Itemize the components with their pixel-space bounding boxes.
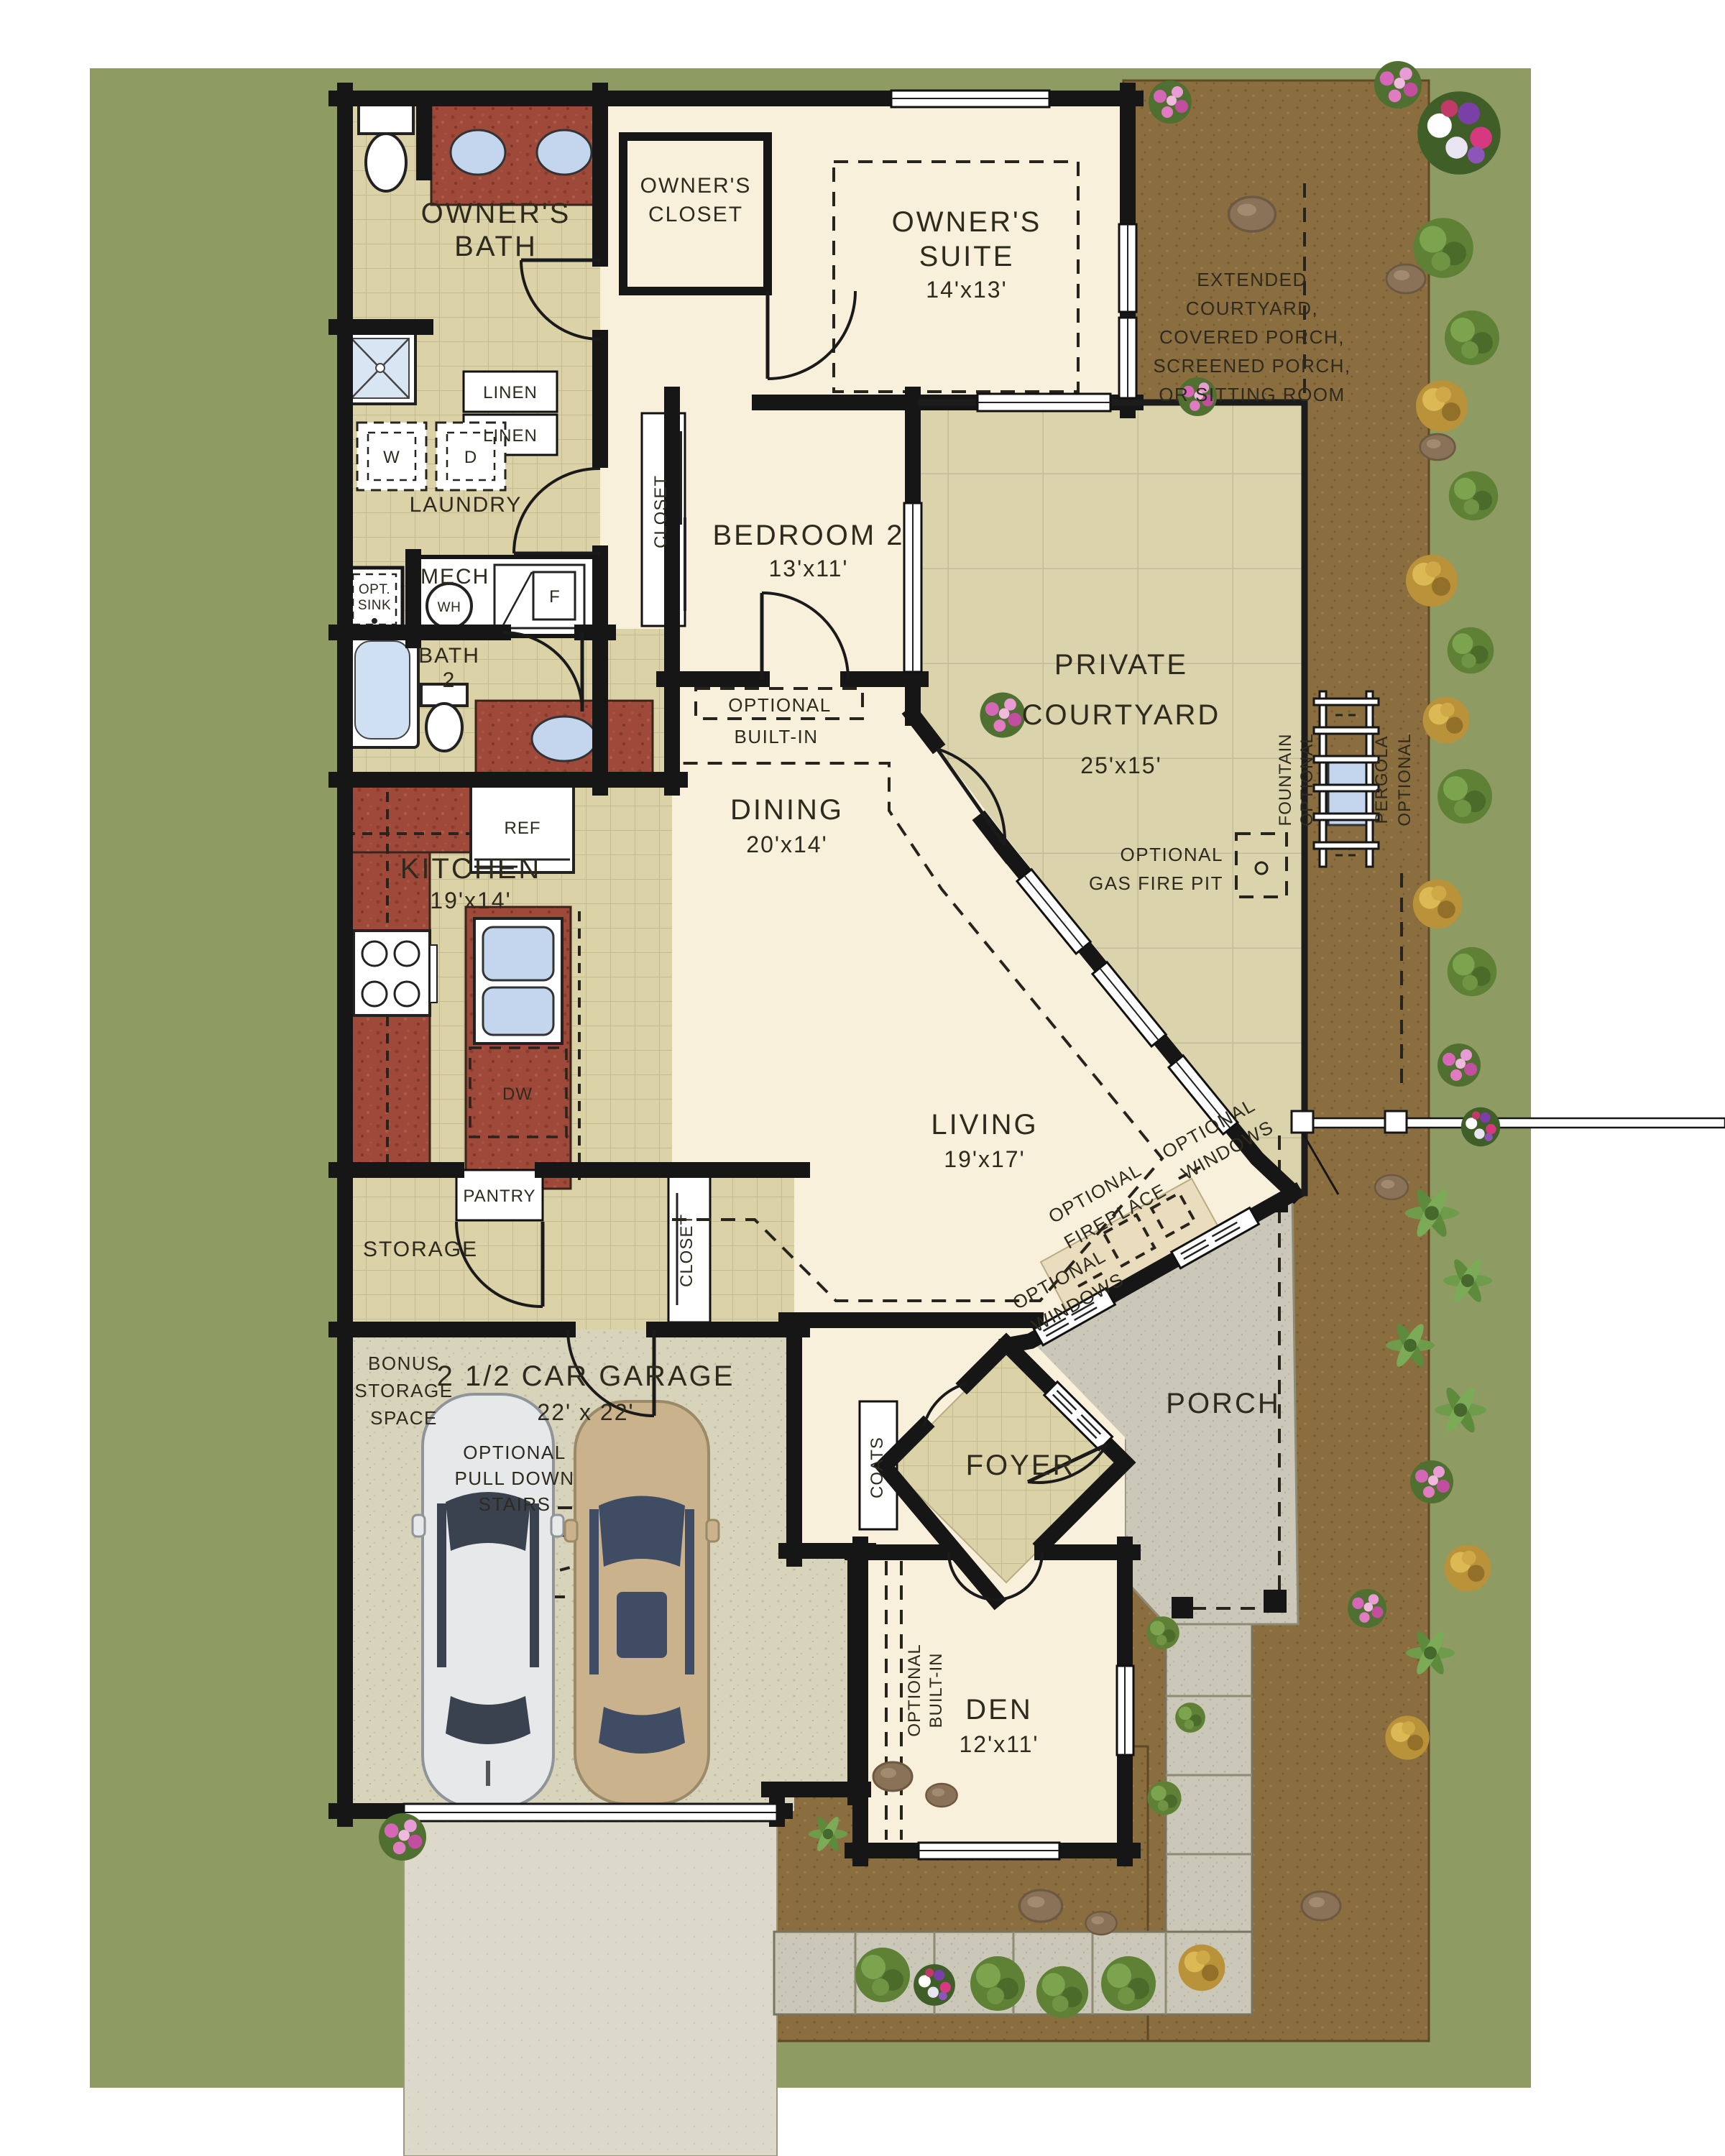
svg-text:SUITE: SUITE (919, 241, 1015, 272)
svg-text:GAS FIRE PIT: GAS FIRE PIT (1089, 872, 1223, 894)
mech-label: MECH (420, 565, 489, 589)
opt-sink-label: OPT. (359, 582, 390, 597)
svg-text:OR SITTING ROOM: OR SITTING ROOM (1159, 384, 1345, 405)
extended-courtyard-label: EXTENDED (1197, 269, 1307, 290)
svg-text:CLOSET: CLOSET (648, 203, 743, 226)
optional-pergola-label: OPTIONAL (1395, 733, 1414, 826)
toilet-icon (359, 105, 413, 134)
svg-text:20'x14': 20'x14' (746, 831, 827, 857)
hall-closet-label: CLOSET (677, 1214, 696, 1287)
svg-text:12'x11': 12'x11' (959, 1731, 1039, 1757)
coats-label: COATS (868, 1437, 887, 1498)
living-label: LIVING (931, 1109, 1038, 1141)
owners-bath-label: OWNER'S (421, 198, 571, 229)
optional-built-in-den-label: OPTIONAL (905, 1644, 924, 1736)
fire-pit-label: OPTIONAL (1121, 844, 1223, 865)
sink-icon (537, 130, 592, 175)
svg-text:SPACE: SPACE (370, 1407, 438, 1429)
washer-label: W (383, 448, 400, 467)
svg-text:COVERED PORCH,: COVERED PORCH, (1159, 326, 1345, 348)
owners-closet-label: OWNER'S (640, 174, 752, 198)
den-label: DEN (965, 1694, 1032, 1726)
car-tan (565, 1401, 719, 1804)
svg-text:BATH: BATH (454, 231, 538, 262)
svg-text:PERGOLA: PERGOLA (1372, 735, 1391, 824)
svg-text:COURTYARD: COURTYARD (1022, 699, 1221, 731)
dining-label: DINING (730, 794, 844, 826)
garage-label: 2 1/2 CAR GARAGE (437, 1360, 735, 1392)
svg-text:BUILT-IN: BUILT-IN (926, 1653, 946, 1728)
svg-text:BUILT-IN: BUILT-IN (735, 726, 819, 747)
floor-plan-page: OWNER'S BATH OWNER'S CLOSET OWNER'S SUIT… (0, 0, 1725, 2156)
courtyard-label: PRIVATE (1054, 649, 1188, 681)
svg-text:25'x15': 25'x15' (1080, 752, 1161, 778)
floor-plan-drawing: OWNER'S BATH OWNER'S CLOSET OWNER'S SUIT… (0, 0, 1725, 2156)
linen-label-2: LINEN (483, 426, 538, 446)
linen-label: LINEN (483, 383, 538, 402)
owners-suite-label: OWNER'S (892, 206, 1042, 238)
bedroom2-closet-label: CLOSET (651, 475, 671, 548)
pantry-label: PANTRY (463, 1187, 535, 1206)
svg-text:13'x11': 13'x11' (768, 556, 848, 581)
svg-text:19'x17': 19'x17' (944, 1146, 1025, 1172)
dryer-label: D (464, 448, 477, 467)
garage-door (404, 1804, 777, 1821)
ref-label: REF (505, 819, 541, 838)
foyer-label: FOYER (966, 1450, 1076, 1481)
toilet-bowl-icon (426, 704, 462, 751)
svg-text:COURTYARD,: COURTYARD, (1186, 298, 1319, 319)
optional-built-in-dining-label: OPTIONAL (728, 694, 831, 716)
optional-fountain-label: OPTIONAL (1297, 733, 1317, 826)
svg-text:FOUNTAIN: FOUNTAIN (1276, 734, 1295, 826)
sink-icon (451, 130, 505, 175)
bonus-storage-label: BONUS (368, 1353, 440, 1374)
bath2-label: BATH (418, 644, 480, 668)
dw-label: DW (502, 1084, 533, 1104)
svg-text:STAIRS: STAIRS (479, 1493, 551, 1515)
svg-text:19'x14': 19'x14' (430, 888, 511, 913)
kitchen-label: KITCHEN (400, 853, 542, 885)
driveway (404, 1811, 777, 2156)
bedroom2-label: BEDROOM 2 (712, 520, 904, 551)
water-heater-label: WH (438, 600, 461, 615)
svg-text:PULL DOWN: PULL DOWN (454, 1468, 574, 1489)
svg-text:SCREENED PORCH,: SCREENED PORCH, (1153, 355, 1351, 377)
furnace-label: F (549, 587, 561, 607)
svg-text:22' x 22': 22' x 22' (537, 1399, 634, 1425)
toilet-bowl-icon (366, 134, 406, 191)
porch-label: PORCH (1166, 1388, 1280, 1419)
svg-text:14'x13': 14'x13' (926, 277, 1007, 303)
svg-text:2: 2 (443, 668, 456, 692)
pull-down-stairs-label: OPTIONAL (463, 1442, 566, 1463)
storage-label: STORAGE (363, 1238, 478, 1261)
svg-text:SINK: SINK (358, 598, 391, 613)
sink-icon (532, 717, 597, 761)
laundry-label: LAUNDRY (410, 493, 523, 517)
